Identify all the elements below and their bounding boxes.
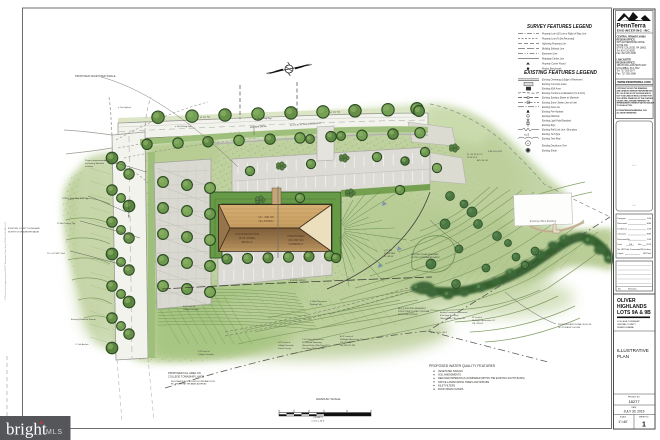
svg-text:SHEET NO.: SHEET NO.: [639, 417, 649, 419]
svg-text:NORTH STORMWATER BASIN: NORTH STORMWATER BASIN: [8, 231, 39, 234]
svg-text:College Township: College Township: [183, 309, 200, 311]
svg-text:Building Setback Line: Building Setback Line: [542, 48, 565, 51]
svg-text:To Railroad Stationing: To Railroad Stationing: [302, 341, 322, 344]
svg-text:a. No Parking Sign: a. No Parking Sign: [255, 118, 272, 120]
svg-text:Centre County: Centre County: [278, 347, 291, 350]
svg-text:C:\PennTerra Engineering Inc\1: C:\PennTerra Engineering Inc\18277 Illus…: [4, 222, 7, 300]
svg-text:DJS: DJS: [647, 239, 652, 241]
svg-text:ILLUSTRATIVE: ILLUSTRATIVE: [617, 348, 649, 353]
svg-text:Offered Under Cliffs Page 261: Offered Under Cliffs Page 261: [440, 317, 465, 320]
svg-text:Existing Sign: Existing Sign: [542, 124, 556, 127]
svg-text:DJS: DJS: [647, 218, 652, 220]
svg-text:A.I.P. Lands of: A.I.P. Lands of: [340, 335, 353, 338]
svg-text:3075 ENTERPRISE DRIVE: 3075 ENTERPRISE DRIVE: [617, 42, 646, 44]
svg-text:PROPOSED VEGETATED SWALE: PROPOSED VEGETATED SWALE: [75, 74, 116, 78]
svg-text:LOT 9B: LOT 9B: [384, 250, 392, 252]
svg-text:EXISTING CLEAR HIGHLAND: EXISTING CLEAR HIGHLAND: [411, 253, 439, 256]
svg-text:EXISTING COUNTY HIGHLAND: EXISTING COUNTY HIGHLAND: [8, 227, 40, 230]
svg-text:(31,400SF): (31,400SF): [258, 219, 273, 223]
svg-text:Walking Path: Walking Path: [310, 303, 322, 306]
svg-text:4.07 Lands of: 4.07 Lands of: [278, 342, 291, 344]
svg-text:MJH: MJH: [647, 223, 652, 225]
svg-text:15' An Parking Typ.: 15' An Parking Typ.: [57, 222, 76, 225]
svg-text:6,25 Level of: 6,25 Level of: [183, 306, 195, 308]
svg-text:T.M. 18-6-52: T.M. 18-6-52: [340, 342, 352, 344]
svg-text:APPROVED DESIGN: APPROVED DESIGN: [398, 313, 418, 316]
svg-text:Property Line /LE Line or Righ: Property Line /LE Line or Right of Way L…: [542, 33, 587, 36]
svg-text:Existing Office Building: Existing Office Building: [530, 219, 557, 223]
svg-text:a. No Parking Sign: a. No Parking Sign: [175, 126, 192, 128]
svg-text:Easement Line: Easement Line: [542, 53, 558, 56]
svg-text:SOIL AMENDMENTS: SOIL AMENDMENTS: [438, 374, 461, 377]
svg-text:GRAPHIC SCALE: GRAPHIC SCALE: [316, 397, 340, 401]
svg-text:1: 1: [642, 422, 646, 429]
svg-text:Fax: 717 925-3088: Fax: 717 925-3088: [617, 73, 637, 75]
svg-text:Property Line (To Be Removed): Property Line (To Be Removed): [542, 38, 574, 41]
svg-text:Property Corner Found: Property Corner Found: [542, 63, 566, 66]
svg-text:18277: 18277: [628, 399, 640, 404]
svg-text:23' -34' 35 & 57.2: 23' -34' 35 & 57.2: [467, 154, 483, 156]
svg-text:P5 36 3D 6: P5 36 3D 6: [467, 157, 478, 159]
svg-text:Layout:: Layout:: [618, 252, 625, 255]
svg-text:C.D. Portland Easement: C.D. Portland Easement: [302, 338, 324, 341]
svg-text:Existing ADA Area: Existing ADA Area: [542, 88, 561, 91]
svg-text:( IN FEET ): ( IN FEET ): [313, 417, 323, 419]
svg-text:PROPOSED ADDITIONAL 36,000 SF: PROPOSED ADDITIONAL 36,000 SF: [558, 323, 592, 326]
svg-text:35,768 SF: 35,768 SF: [384, 256, 394, 258]
svg-text:SUITE 100: SUITE 100: [617, 45, 629, 47]
svg-text:Existing Contours w/ Elevation: Existing Contours w/ Elevation (2's & 10…: [542, 92, 585, 95]
svg-text:LANCASTER: LANCASTER: [617, 59, 632, 62]
svg-text:REGION OFFICE:: REGION OFFICE:: [617, 62, 636, 64]
svg-text:& Drainage Easement: & Drainage Easement: [440, 314, 459, 317]
svg-text:Existing Gas Line: Existing Gas Line: [542, 106, 561, 109]
svg-text:Existing Tree Row: Existing Tree Row: [542, 138, 561, 141]
svg-text:Wellington Associates L.P.: Wellington Associates L.P.: [340, 338, 364, 341]
svg-text:T.M. 18-6-52: T.M. 18-6-52: [472, 323, 484, 325]
svg-text:LOTS 9A & 9B: LOTS 9A & 9B: [617, 310, 651, 316]
svg-text:MLS: MLS: [46, 429, 63, 436]
svg-text:WWW.PENNTERRA.COM: WWW.PENNTERRA.COM: [617, 80, 651, 84]
svg-text:24' Ess Strip Way Side Typ.: 24' Ess Strip Way Side Typ.: [62, 197, 89, 200]
svg-text:18277dwl: 18277dwl: [643, 253, 652, 255]
svg-text:Existing Deciduous Tree: Existing Deciduous Tree: [542, 145, 567, 148]
svg-text:Existing Rail Limit Line / Bou: Existing Rail Limit Line / Boundary: [542, 129, 578, 132]
svg-text:1"=40': 1"=40': [618, 420, 628, 424]
svg-text:COLLEGE TOWNSHIP LANDS: COLLEGE TOWNSHIP LANDS: [168, 375, 204, 379]
svg-text:25' Level of: 25' Level of: [472, 317, 483, 319]
svg-text:Seal: Seal: [632, 165, 637, 167]
svg-text:ENGINEERING INC.: ENGINEERING INC.: [617, 29, 651, 33]
svg-text:REDUCED IMPERVIOUS (COMPARED W: REDUCED IMPERVIOUS (COMPARED WITHIN THE …: [438, 377, 525, 380]
svg-text:Draftsman: Draftsman: [618, 227, 628, 230]
svg-text:Project improvements: Project improvements: [85, 159, 107, 162]
svg-text:5,25 Level of: 5,25 Level of: [198, 351, 210, 353]
svg-text:STRUCTURE TO MEET ORIGINAL: STRUCTURE TO MEET ORIGINAL: [398, 310, 431, 313]
svg-text:Offered Under Cliffs Page 261: Offered Under Cliffs Page 261: [302, 345, 330, 347]
svg-text:COMPANY: COMPANY: [289, 242, 304, 246]
svg-text:Designer: Designer: [618, 217, 627, 220]
svg-text:to follow: to follow: [85, 165, 93, 168]
svg-text:Revisions: Revisions: [628, 289, 637, 291]
svg-text:COLLEGE TOWNSHIP: COLLEGE TOWNSHIP: [617, 321, 640, 323]
svg-text:Wellington Associates L.P.: Wellington Associates L.P.: [472, 319, 496, 322]
svg-text:1853 B WILLIAM PENN WAY: 1853 B WILLIAM PENN WAY: [617, 64, 647, 67]
svg-text:AP5 -36- 3D: AP5 -36- 3D: [477, 159, 489, 162]
svg-text:College Township: College Township: [278, 345, 295, 347]
svg-text:Fax: 814 237-4308: Fax: 814 237-4308: [617, 53, 637, 55]
svg-text:Tel: 814 231-8285: Tel: 814 231-8285: [617, 50, 636, 52]
svg-text:MJH: MJH: [647, 234, 652, 236]
svg-text:to Existing Manhole: to Existing Manhole: [85, 162, 105, 165]
svg-text:8' WIDE SWALE: 8' WIDE SWALE: [290, 279, 307, 282]
svg-text:14.1 - 14.4 = +34.2: 14.1 - 14.4 = +34.2: [430, 332, 448, 334]
svg-text:SURVEY FEATURES LEGEND: SURVEY FEATURES LEGEND: [527, 24, 592, 30]
svg-text:Existing Shrub: Existing Shrub: [542, 149, 558, 152]
svg-text:JULY 30, 2019: JULY 30, 2019: [624, 410, 645, 414]
svg-text:Roadway Center Line: Roadway Center Line: [542, 58, 565, 61]
svg-text:No. 18277dwl, Framework(JW) Is: No. 18277dwl, Framework(JW) Iss.dwg: [618, 248, 651, 251]
svg-text:CENTRAL PENNSYLVANIA: CENTRAL PENNSYLVANIA: [617, 36, 647, 39]
svg-text:Existing Redbank Stream: Existing Redbank Stream: [71, 318, 96, 321]
svg-text:Existing Transmission Easement: Existing Transmission Easement: [440, 311, 468, 314]
svg-text:Existing Sanitary Sewer w/ Man: Existing Sanitary Sewer w/ Manhole: [542, 97, 579, 100]
svg-text:NATIVE LANDSCAPING TREES AND S: NATIVE LANDSCAPING TREES AND SHRUBS: [438, 381, 489, 384]
svg-text:Existing Overhang & Edge of Pa: Existing Overhang & Edge of Pavement: [542, 79, 583, 82]
svg-text:CENTRE COUNTY: CENTRE COUNTY: [617, 324, 636, 326]
svg-text:DJS: DJS: [647, 228, 652, 230]
svg-text:OF STORAGE VOLUME: OF STORAGE VOLUME: [558, 326, 581, 329]
svg-text:COLUMBIA, PA 17512: COLUMBIA, PA 17512: [617, 67, 641, 70]
svg-text:ALL RIGHTS RESERVED.: ALL RIGHTS RESERVED.: [617, 112, 638, 115]
svg-text:6' Wide Permanent: 6' Wide Permanent: [310, 300, 327, 303]
svg-text:PROPOSED FILL AREA ON: PROPOSED FILL AREA ON: [168, 371, 201, 375]
svg-text:Existing Turf Type: Existing Turf Type: [542, 133, 561, 136]
svg-text:Existing Fire Hydrant: Existing Fire Hydrant: [542, 110, 564, 113]
svg-text:PLAN: PLAN: [617, 354, 629, 359]
svg-text:Checked: Checked: [618, 234, 627, 236]
svg-text:Adjoining Property Line: Adjoining Property Line: [541, 43, 566, 46]
svg-text:t.u.5: t.u.5: [524, 132, 530, 136]
svg-text:Existing Storm Sewer Line w/ I: Existing Storm Sewer Line w/ Inlet: [542, 101, 577, 104]
svg-text:STATE COLLEGE, PA 16801: STATE COLLEGE, PA 16801: [617, 47, 647, 50]
svg-text:EXISTING FEATURES LEGEND: EXISTING FEATURES LEGEND: [524, 70, 597, 76]
svg-text:(AL)(T) EXISTING EASEMENT: (AL)(T) EXISTING EASEMENT: [398, 307, 427, 310]
svg-text:S 88 14 E 453.1: S 88 14 E 453.1: [488, 151, 503, 153]
svg-text:10' x 24' WPV Std.: 10' x 24' WPV Std.: [47, 252, 65, 255]
svg-text:TO LEGAL ACTION.: TO LEGAL ACTION.: [617, 104, 633, 107]
svg-text:OLD FORT ROAD: OLD FORT ROAD: [127, 200, 130, 218]
svg-text:SCALE: SCALE: [620, 416, 627, 419]
svg-text:Port Share NE Page 261: Port Share NE Page 261: [302, 347, 325, 350]
svg-text:BLDG A: BLDG A: [242, 240, 253, 244]
svg-text:DB 2056 PG 385: DB 2056 PG 385: [340, 345, 356, 347]
svg-text:Reviewed: Reviewed: [618, 223, 628, 225]
svg-text:Reviewed By: Reviewed By: [618, 239, 631, 241]
svg-text:College Township: College Township: [198, 354, 215, 356]
svg-text:ROOF DRAIN FILTERS: ROOF DRAIN FILTERS: [438, 388, 464, 391]
svg-text:9.73 ACRES: 9.73 ACRES: [384, 252, 396, 255]
svg-text:SOUTH STORMWATER BASIN: SOUTH STORMWATER BASIN: [411, 256, 440, 259]
svg-text:C. Del Anchor: C. Del Anchor: [75, 343, 89, 346]
svg-text:1 inch = 40 ft.: 1 inch = 40 ft.: [311, 420, 325, 423]
svg-text:FILL FROM THAT THE BASIS ACHIE: FILL FROM THAT THE BASIS ACHIEVED: [171, 383, 207, 386]
svg-text:REGION OFFICE:: REGION OFFICE:: [617, 39, 636, 41]
svg-text:Tel: 717 925-3077: Tel: 717 925-3077: [617, 71, 636, 73]
svg-text:PENNSYLVANIA: PENNSYLVANIA: [617, 326, 634, 329]
svg-text:INLET FILTERS: INLET FILTERS: [438, 384, 455, 387]
svg-text:No.: No.: [618, 289, 622, 291]
svg-text:PROPOSED WATER QUALITY FEATURE: PROPOSED WATER QUALITY FEATURES: [429, 364, 496, 368]
svg-text:Existing Light Pole/Standard: Existing Light Pole/Standard: [542, 119, 572, 122]
svg-text:Existing Manhole: Existing Manhole: [542, 115, 560, 118]
svg-text:VEGETATED SWALES: VEGETATED SWALES: [438, 370, 463, 373]
svg-text:a. Fire Hydrant: a. Fire Hydrant: [118, 106, 132, 109]
svg-text:Existing Concrete Areas: Existing Concrete Areas: [542, 83, 567, 86]
